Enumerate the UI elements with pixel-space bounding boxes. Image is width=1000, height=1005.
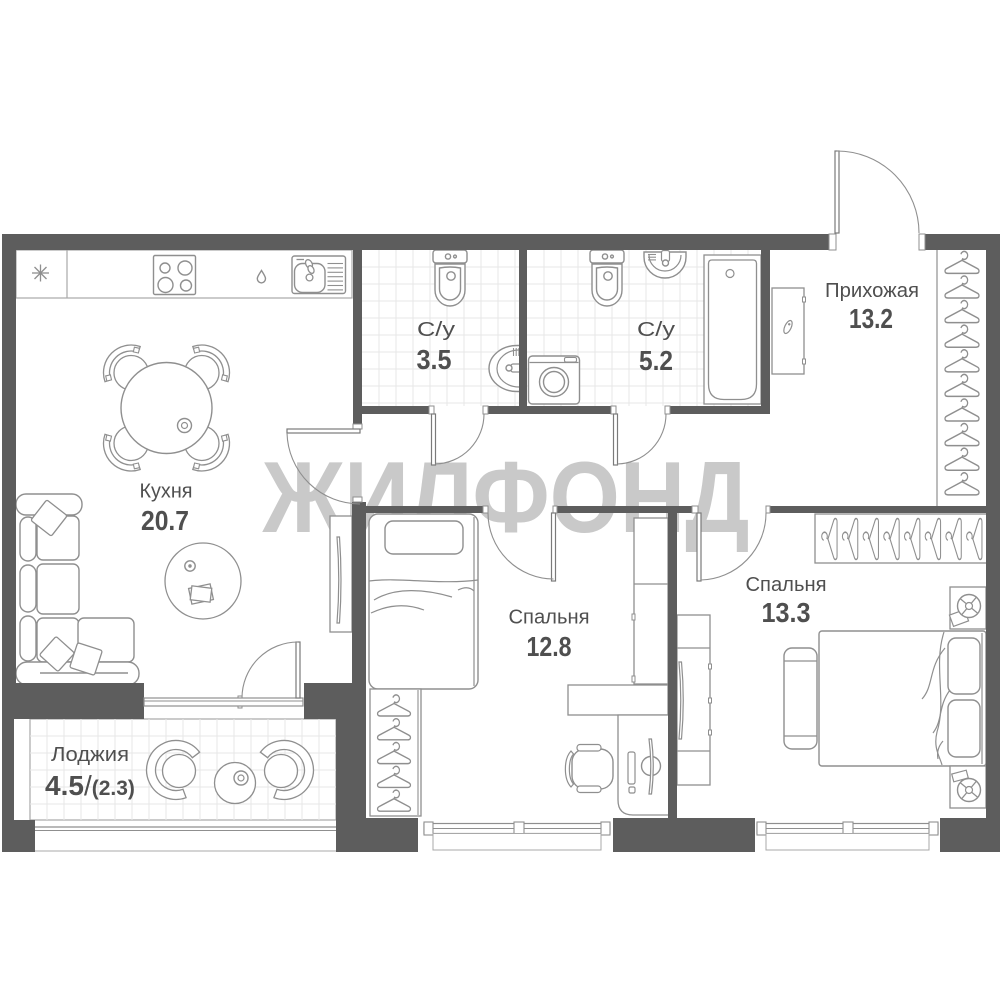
svg-text:С/у: С/у — [417, 319, 455, 341]
svg-text:13.3: 13.3 — [762, 597, 811, 628]
svg-text:Спальня: Спальня — [746, 574, 827, 596]
svg-text:Лоджия: Лоджия — [51, 744, 129, 766]
svg-text:С/у: С/у — [637, 319, 675, 341]
svg-text:20.7: 20.7 — [141, 505, 189, 536]
svg-text:13.2: 13.2 — [849, 303, 893, 334]
svg-text:Прихожая: Прихожая — [825, 280, 919, 302]
svg-text:Спальня: Спальня — [509, 607, 590, 629]
svg-text:5.2: 5.2 — [639, 345, 673, 376]
svg-text:3.5: 3.5 — [417, 344, 452, 375]
svg-text:12.8: 12.8 — [527, 631, 572, 662]
svg-text:Кухня: Кухня — [140, 481, 193, 503]
